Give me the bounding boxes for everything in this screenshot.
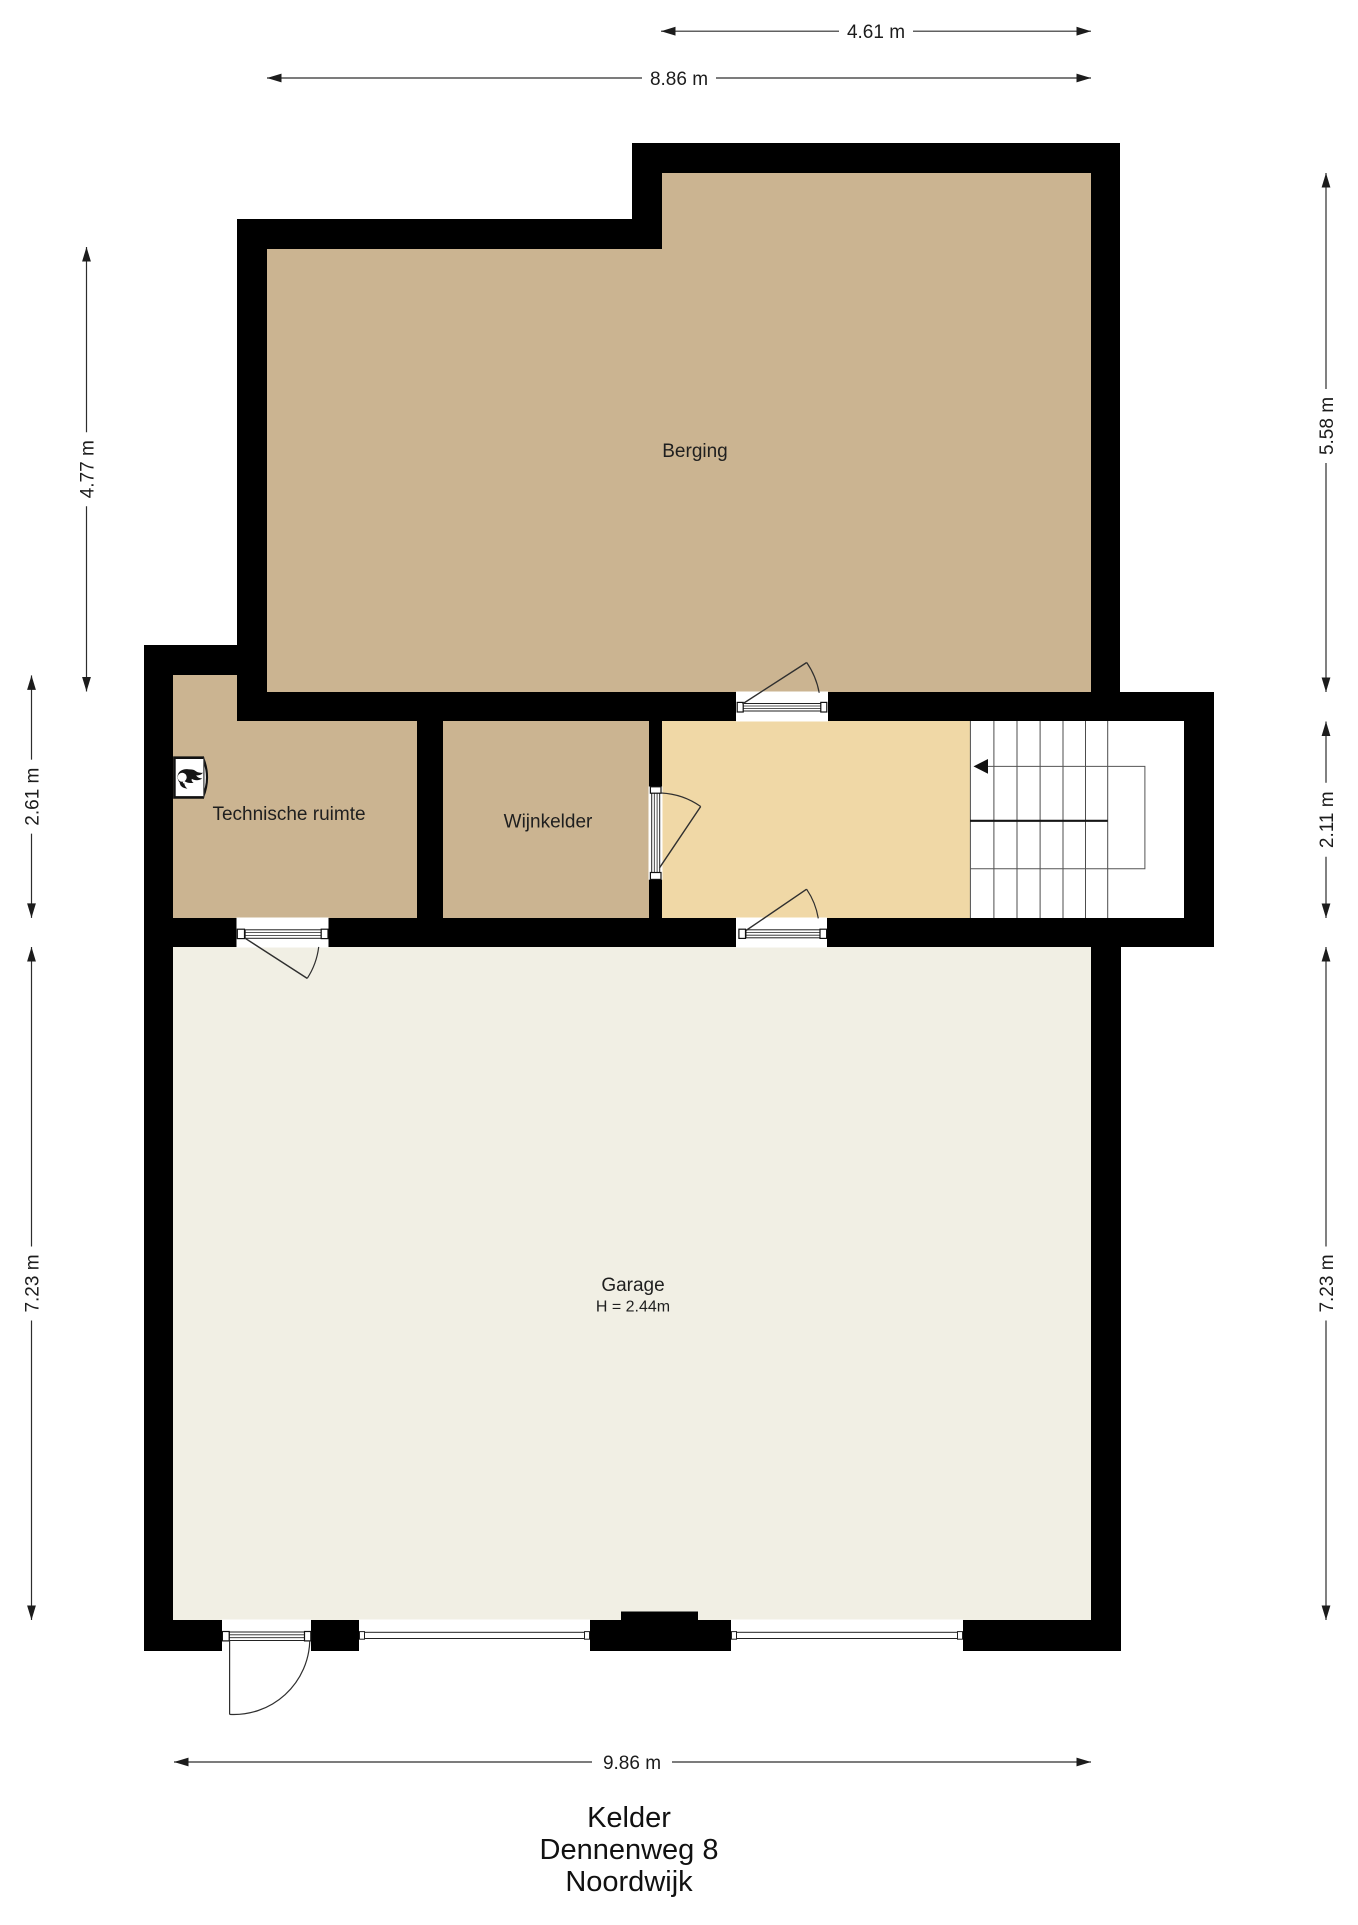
svg-text:Noordwijk: Noordwijk <box>565 1866 693 1898</box>
svg-text:7.23 m: 7.23 m <box>1317 1254 1338 1312</box>
svg-text:H = 2.44m: H = 2.44m <box>596 1298 670 1315</box>
svg-text:5.58 m: 5.58 m <box>1317 397 1338 455</box>
svg-text:7.23 m: 7.23 m <box>22 1254 43 1312</box>
svg-text:Technische ruimte: Technische ruimte <box>212 804 365 825</box>
svg-text:2.61 m: 2.61 m <box>22 768 43 826</box>
svg-text:Wijnkelder: Wijnkelder <box>504 811 593 832</box>
svg-text:Garage: Garage <box>601 1275 664 1296</box>
svg-text:2.11 m: 2.11 m <box>1317 791 1338 848</box>
svg-text:Kelder: Kelder <box>587 1802 671 1834</box>
svg-text:Berging: Berging <box>662 441 728 462</box>
svg-text:4.77 m: 4.77 m <box>77 440 98 498</box>
svg-text:Dennenweg 8: Dennenweg 8 <box>540 1834 719 1866</box>
svg-text:9.86 m: 9.86 m <box>603 1753 661 1774</box>
svg-text:4.61 m: 4.61 m <box>847 22 905 43</box>
svg-text:8.86 m: 8.86 m <box>650 69 708 90</box>
